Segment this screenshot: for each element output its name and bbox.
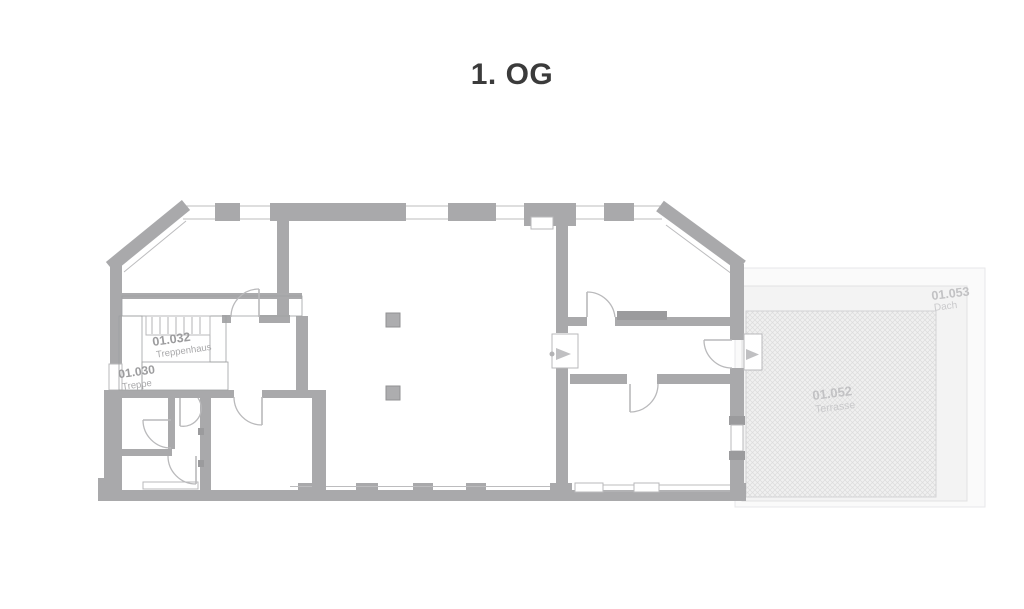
left-chamfer-wall xyxy=(110,205,186,267)
bottom-wall-window xyxy=(634,483,659,492)
right-wall-window xyxy=(731,425,743,451)
door-swing xyxy=(587,292,615,317)
door-swing xyxy=(234,397,262,425)
column xyxy=(386,386,400,400)
interior-walls xyxy=(122,220,740,490)
entrance-marker-dot xyxy=(550,352,555,357)
door-swing xyxy=(180,398,201,426)
passage-frame xyxy=(552,334,578,368)
column xyxy=(386,313,400,327)
bottom-wall-window xyxy=(575,483,603,492)
door-swing xyxy=(704,340,732,368)
room-label-terrasse: 01.052 Terrasse xyxy=(812,383,857,416)
door-swing xyxy=(168,456,196,484)
door-swing xyxy=(630,384,658,412)
door-swing xyxy=(143,420,171,448)
floor-plan-drawing: 01.030 Treppe 01.032 Treppenhaus 01.052 … xyxy=(0,0,1024,609)
right-chamfer-wall xyxy=(660,206,742,266)
room-label-treppe: 01.030 Treppe xyxy=(117,362,157,393)
